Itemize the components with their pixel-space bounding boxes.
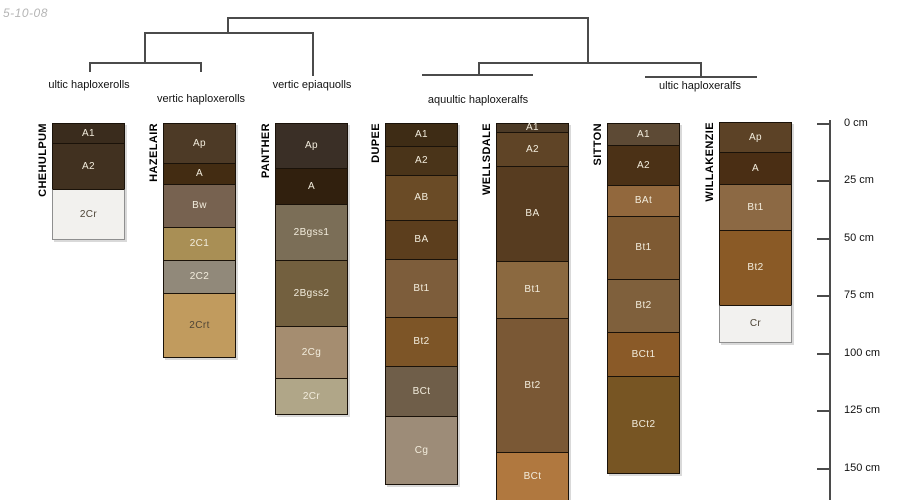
horizon-label: Bt1 <box>635 243 651 253</box>
horizon-box: 2C1 <box>163 227 236 261</box>
horizon-label: A2 <box>526 145 539 155</box>
horizon-box: AB <box>385 175 458 221</box>
horizon-label: Cg <box>415 446 429 456</box>
horizon-label: 2Bgss1 <box>294 228 330 238</box>
horizon-label: 2C1 <box>190 239 210 249</box>
depth-tick <box>817 410 829 412</box>
taxon-label: ultic haploxeralfs <box>659 80 741 92</box>
horizon-box: 2Bgss2 <box>275 260 348 327</box>
dendrogram-line <box>312 32 314 76</box>
horizon-label: 2Cr <box>80 210 97 220</box>
profile-name-wellsdale: WELLSDALE <box>481 123 494 195</box>
horizon-box: A <box>275 168 348 205</box>
depth-tick <box>817 238 829 240</box>
date-stamp: 5-10-08 <box>3 6 48 20</box>
depth-tick-label: 125 cm <box>844 404 880 416</box>
depth-tick <box>817 353 829 355</box>
horizon-label: A <box>308 182 315 192</box>
dendrogram-line <box>200 62 202 72</box>
horizon-box: A2 <box>52 143 125 190</box>
dendrogram-line <box>587 17 589 63</box>
horizon-box: BCt2 <box>607 376 680 474</box>
dendrogram-line <box>422 74 533 76</box>
dendrogram-line <box>89 62 201 64</box>
horizon-label: Bt1 <box>413 284 429 294</box>
horizon-box: A2 <box>385 146 458 176</box>
horizon-label: BA <box>525 209 539 219</box>
horizon-box: BCt1 <box>607 332 680 377</box>
dendrogram-line <box>144 32 313 34</box>
horizon-box: A1 <box>607 123 680 146</box>
horizon-label: 2Crt <box>189 321 210 331</box>
horizon-label: Cr <box>750 319 761 329</box>
horizon-label: A <box>752 164 759 174</box>
dendrogram-line <box>645 76 757 78</box>
horizon-label: BCt <box>413 387 431 397</box>
horizon-label: 2C2 <box>190 272 210 282</box>
profile-column-dupee: A1A2ABBABt1Bt2BCtCg <box>385 123 458 485</box>
horizon-label: 2Bgss2 <box>294 289 330 299</box>
depth-axis-line <box>829 120 831 500</box>
depth-tick <box>817 468 829 470</box>
horizon-box: A1 <box>385 123 458 147</box>
horizon-box: BA <box>496 166 569 262</box>
profile-column-wellsdale: A1A2BABt1Bt2BCt <box>496 123 569 500</box>
horizon-box: A1 <box>52 123 125 144</box>
horizon-box: Bt2 <box>496 318 569 453</box>
depth-tick-label: 75 cm <box>844 289 874 301</box>
depth-tick <box>817 123 829 125</box>
horizon-label: A2 <box>637 161 650 171</box>
horizon-box: 2Cg <box>275 326 348 379</box>
horizon-label: Bt1 <box>524 285 540 295</box>
dendrogram-line <box>227 17 589 19</box>
horizon-box: BCt <box>496 452 569 500</box>
horizon-label: BA <box>414 235 428 245</box>
taxon-label: aquultic haploxeralfs <box>428 94 528 106</box>
depth-tick <box>817 295 829 297</box>
horizon-label: 2Cr <box>303 392 320 402</box>
horizon-box: Ap <box>275 123 348 169</box>
horizon-box: Bt1 <box>607 216 680 280</box>
horizon-label: A2 <box>415 156 428 166</box>
horizon-box: A <box>163 163 236 185</box>
horizon-label: Bt2 <box>413 337 429 347</box>
horizon-label: Ap <box>305 141 318 151</box>
profile-column-sitton: A1A2BAtBt1Bt2BCt1BCt2 <box>607 123 680 474</box>
horizon-label: A1 <box>415 130 428 140</box>
horizon-label: AB <box>414 193 428 203</box>
horizon-box: BCt <box>385 366 458 417</box>
horizon-label: Ap <box>749 133 762 143</box>
horizon-box: Cr <box>719 305 792 343</box>
depth-tick-label: 25 cm <box>844 174 874 186</box>
soil-profile-figure: 5-10-08 ultic haploxerollsvertic haploxe… <box>0 0 900 500</box>
profile-name-willakenzie: WILLAKENZIE <box>704 122 717 202</box>
dendrogram-line <box>144 32 146 63</box>
profile-column-chehulpum: A1A22Cr <box>52 123 125 240</box>
taxon-label: vertic epiaquolls <box>273 79 352 91</box>
horizon-box: Bt2 <box>385 317 458 367</box>
dendrogram-line <box>227 17 229 33</box>
horizon-label: BAt <box>635 196 652 206</box>
horizon-label: A1 <box>637 130 650 140</box>
horizon-label: Bt2 <box>524 381 540 391</box>
horizon-label: A <box>196 169 203 179</box>
horizon-box: Bt1 <box>496 261 569 319</box>
profile-column-panther: ApA2Bgss12Bgss22Cg2Cr <box>275 123 348 415</box>
horizon-label: BCt <box>524 472 542 482</box>
horizon-box: A <box>719 152 792 185</box>
horizon-label: A2 <box>82 162 95 172</box>
horizon-box: BA <box>385 220 458 260</box>
horizon-box: Bt2 <box>719 230 792 306</box>
depth-tick-label: 0 cm <box>844 117 868 129</box>
horizon-label: Bt2 <box>635 301 651 311</box>
horizon-box: Cg <box>385 416 458 485</box>
depth-tick-label: 100 cm <box>844 347 880 359</box>
horizon-label: A1 <box>82 129 95 139</box>
horizon-box: Bt1 <box>385 259 458 318</box>
horizon-label: BCt2 <box>632 420 656 430</box>
horizon-box: BAt <box>607 185 680 217</box>
profile-name-sitton: SITTON <box>592 123 605 166</box>
horizon-box: A2 <box>607 145 680 186</box>
horizon-box: Ap <box>163 123 236 164</box>
horizon-box: 2Cr <box>52 189 125 240</box>
taxon-label: ultic haploxerolls <box>48 79 129 91</box>
horizon-box: Bt1 <box>719 184 792 231</box>
horizon-label: A1 <box>526 123 539 133</box>
profile-name-dupee: DUPEE <box>370 123 383 163</box>
taxon-label: vertic haploxerolls <box>157 93 245 105</box>
horizon-box: Bt2 <box>607 279 680 333</box>
profile-column-willakenzie: ApABt1Bt2Cr <box>719 122 792 343</box>
horizon-box: Bw <box>163 184 236 228</box>
horizon-box: 2Bgss1 <box>275 204 348 261</box>
profile-name-chehulpum: CHEHULPUM <box>37 123 50 197</box>
horizon-box: Ap <box>719 122 792 153</box>
profile-name-panther: PANTHER <box>260 123 273 178</box>
horizon-label: Ap <box>193 139 206 149</box>
dendrogram-line <box>700 62 702 77</box>
horizon-box: A2 <box>496 132 569 167</box>
depth-tick-label: 150 cm <box>844 462 880 474</box>
horizon-box: 2Crt <box>163 293 236 358</box>
depth-tick-label: 50 cm <box>844 232 874 244</box>
horizon-label: Bw <box>192 201 207 211</box>
horizon-box: 2C2 <box>163 260 236 294</box>
horizon-label: Bt1 <box>747 203 763 213</box>
dendrogram-line <box>89 62 91 72</box>
horizon-label: Bt2 <box>747 263 763 273</box>
profile-name-hazelair: HAZELAIR <box>148 123 161 182</box>
horizon-label: BCt1 <box>632 350 656 360</box>
dendrogram-line <box>478 62 701 64</box>
horizon-label: 2Cg <box>302 348 322 358</box>
depth-tick <box>817 180 829 182</box>
profile-column-hazelair: ApABw2C12C22Crt <box>163 123 236 358</box>
horizon-box: 2Cr <box>275 378 348 415</box>
